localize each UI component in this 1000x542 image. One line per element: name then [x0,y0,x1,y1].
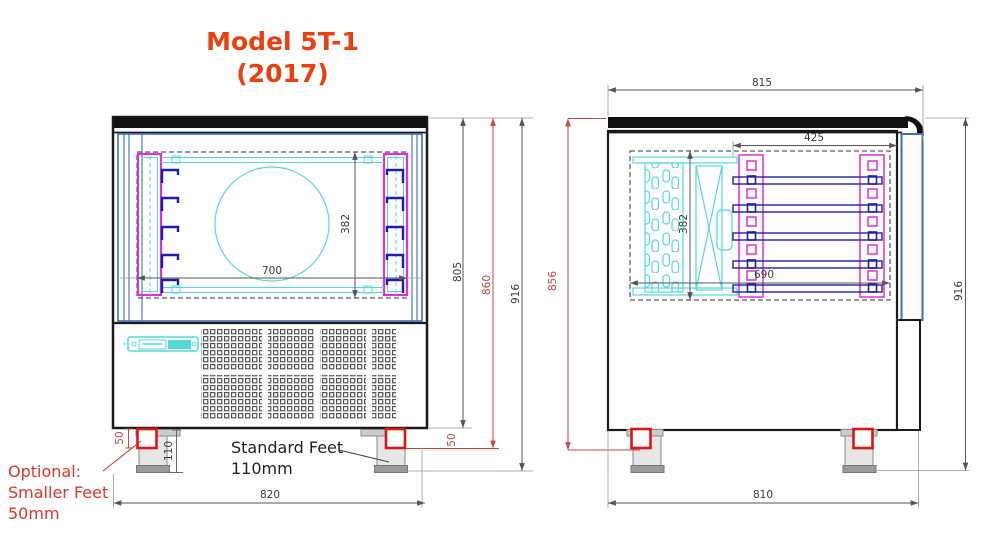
small-foot-red-outline [632,429,651,448]
front-top-band [114,117,426,128]
side-view [568,85,969,508]
optional-feet-note: Optional: Smaller Feet 50mm [8,461,108,524]
vent-grid [200,328,396,420]
dim-label-856: 856 [547,259,559,303]
foot-side-right [841,429,877,473]
dim-label-110: 110 [163,429,175,473]
dim-label-916-side: 916 [953,269,965,313]
dim-label-815: 815 [740,77,784,89]
foot-front-right [361,429,408,473]
side-lower-panel [897,320,920,430]
dim-label-700: 700 [250,265,294,277]
model-year: (2017) [185,58,380,90]
foot-side-left [627,429,664,473]
dim-label-820: 820 [248,489,292,501]
dim-label-425: 425 [792,132,836,144]
small-foot-red-outline [854,429,873,448]
small-foot-red-outline [386,429,405,448]
small-foot-red-outline [138,429,157,448]
standard-feet-note: Standard Feet 110mm [231,437,343,479]
side-door [902,134,923,320]
dim-label-50-left: 50 [114,416,126,460]
dim-label-382-side: 382 [678,202,690,246]
technical-drawing-canvas: Model 5T-1 (2017) 700 382 805 860 916 50… [0,0,1000,542]
dim-50-left [125,429,132,448]
dim-label-382-front: 382 [340,202,352,246]
side-top-band [608,117,908,128]
model-name: Model 5T-1 [185,26,380,58]
dim-label-805: 805 [452,250,464,294]
dim-label-916-front: 916 [510,272,522,316]
page-title: Model 5T-1 (2017) [185,26,380,90]
dim-label-860: 860 [481,263,493,307]
dim-label-50-right: 50 [446,418,458,462]
drawing-linework [0,0,1000,542]
dim-label-810: 810 [741,489,785,501]
dim-label-690: 690 [742,269,786,281]
